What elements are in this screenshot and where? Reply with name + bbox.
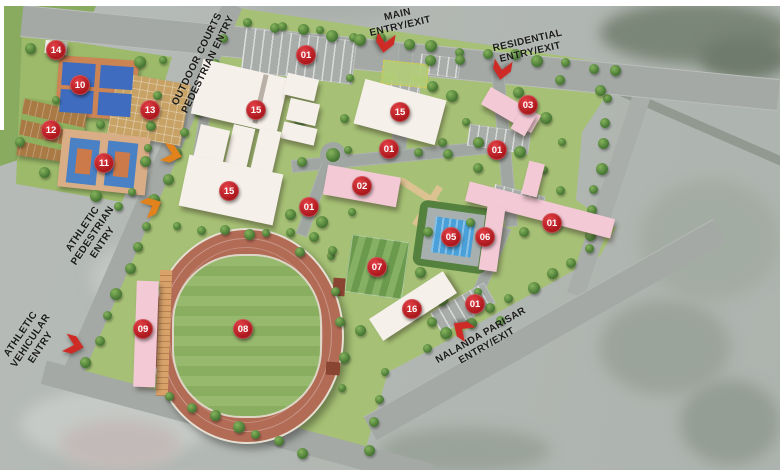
- tree-canopy: [180, 128, 189, 137]
- tree-canopy: [338, 384, 346, 392]
- tree-canopy: [381, 368, 389, 376]
- tree-canopy: [39, 167, 50, 178]
- tree-canopy: [15, 137, 25, 147]
- basketball-court: [99, 65, 134, 90]
- badge-01: 01: [465, 294, 485, 314]
- badge-05: 05: [441, 227, 461, 247]
- badge-13: 13: [140, 100, 160, 120]
- tree-canopy: [96, 120, 105, 129]
- tree-canopy: [297, 157, 307, 167]
- tree-canopy: [285, 209, 296, 220]
- badge-02: 02: [352, 176, 372, 196]
- badge-08: 08: [233, 319, 253, 339]
- tree-canopy: [173, 222, 181, 230]
- tree-canopy: [427, 81, 438, 92]
- tree-canopy: [346, 74, 354, 82]
- tree-canopy: [309, 232, 319, 242]
- tree-canopy: [25, 43, 36, 54]
- tree-canopy: [331, 287, 340, 296]
- tree-canopy: [340, 114, 349, 123]
- tree-canopy: [144, 144, 152, 152]
- badge-14: 14: [46, 40, 66, 60]
- tree-canopy: [110, 288, 122, 300]
- tree-canopy: [165, 392, 174, 401]
- tree-canopy: [295, 247, 305, 257]
- tree-canopy: [585, 244, 594, 253]
- badge-16: 16: [402, 299, 422, 319]
- tree-canopy: [297, 448, 308, 459]
- frame-top: [0, 0, 780, 6]
- tree-canopy: [600, 118, 610, 128]
- campus-master-plan-map: MAINENTRY/EXITRESIDENTIALENTRY/EXITOUTDO…: [0, 0, 780, 470]
- tree-canopy: [595, 85, 606, 96]
- tree-canopy: [344, 146, 352, 154]
- tree-canopy: [519, 227, 529, 237]
- tree-canopy: [335, 317, 345, 327]
- aerial-blob: [680, 380, 780, 465]
- tree-canopy: [364, 445, 375, 456]
- badge-15: 15: [246, 100, 266, 120]
- badge-07: 07: [367, 257, 387, 277]
- tree-canopy: [286, 228, 295, 237]
- tree-canopy: [125, 263, 136, 274]
- roundabout-island: [326, 148, 340, 162]
- tree-canopy: [95, 336, 105, 346]
- tree-canopy: [446, 90, 458, 102]
- tree-canopy: [610, 65, 621, 76]
- tree-canopy: [197, 226, 206, 235]
- tree-canopy: [415, 267, 426, 278]
- tree-canopy: [555, 75, 565, 85]
- tree-canopy: [540, 112, 552, 124]
- tree-canopy: [355, 325, 366, 336]
- tree-canopy: [589, 185, 598, 194]
- tennis-court-surface: [75, 148, 93, 174]
- track-side-structure: [326, 362, 341, 376]
- badge-12: 12: [41, 120, 61, 140]
- tree-canopy: [316, 26, 324, 34]
- tree-canopy: [146, 121, 156, 131]
- badge-15: 15: [390, 102, 410, 122]
- badge-01: 01: [296, 45, 316, 65]
- aerial-blob: [60, 420, 180, 470]
- frame-left: [0, 0, 4, 130]
- tree-canopy: [423, 344, 432, 353]
- tree-canopy: [52, 96, 60, 104]
- tree-canopy: [128, 188, 136, 196]
- tree-canopy: [233, 421, 245, 433]
- tree-canopy: [485, 303, 495, 313]
- tree-canopy: [558, 138, 566, 146]
- tennis-court-surface: [113, 151, 131, 177]
- tree-canopy: [354, 34, 366, 46]
- tree-canopy: [556, 186, 565, 195]
- tree-canopy: [423, 227, 433, 237]
- badge-10: 10: [70, 75, 90, 95]
- tree-canopy: [316, 216, 328, 228]
- basketball-court: [97, 92, 132, 117]
- badge-06: 06: [475, 227, 495, 247]
- tree-canopy: [561, 58, 570, 67]
- tree-canopy: [425, 40, 437, 52]
- tree-canopy: [328, 246, 337, 255]
- tree-canopy: [220, 225, 230, 235]
- tree-canopy: [473, 163, 483, 173]
- tree-canopy: [375, 395, 384, 404]
- tree-canopy: [528, 282, 540, 294]
- tree-canopy: [425, 55, 436, 66]
- badge-15: 15: [219, 181, 239, 201]
- tree-canopy: [348, 208, 356, 216]
- badge-01: 01: [542, 213, 562, 233]
- tree-canopy: [455, 55, 465, 65]
- tree-canopy: [443, 149, 453, 159]
- tree-canopy: [251, 430, 260, 439]
- tree-canopy: [326, 30, 338, 42]
- tree-canopy: [274, 436, 284, 446]
- tree-canopy: [339, 352, 350, 363]
- tree-canopy: [210, 410, 221, 421]
- badge-03: 03: [518, 95, 538, 115]
- tree-canopy: [163, 174, 174, 185]
- tree-canopy: [566, 258, 576, 268]
- aerial-blob: [600, 300, 730, 395]
- tree-canopy: [103, 311, 112, 320]
- tree-canopy: [596, 163, 608, 175]
- tree-canopy: [438, 138, 447, 147]
- tree-canopy: [414, 148, 423, 157]
- badge-01: 01: [379, 139, 399, 159]
- tree-canopy: [547, 268, 558, 279]
- tree-canopy: [153, 91, 162, 100]
- tree-canopy: [466, 218, 475, 227]
- badge-01: 01: [299, 197, 319, 217]
- badge-09: 09: [133, 319, 153, 339]
- tree-canopy: [243, 18, 252, 27]
- badge-11: 11: [94, 153, 114, 173]
- tree-canopy: [140, 156, 151, 167]
- tree-canopy: [134, 56, 146, 68]
- tree-canopy: [473, 137, 484, 148]
- tree-canopy: [598, 138, 609, 149]
- tree-canopy: [589, 64, 599, 74]
- badge-01: 01: [487, 140, 507, 160]
- tree-canopy: [504, 294, 513, 303]
- tree-canopy: [244, 229, 255, 240]
- tree-canopy: [462, 118, 470, 126]
- tree-canopy: [278, 22, 287, 31]
- tree-canopy: [159, 56, 167, 64]
- tree-canopy: [514, 146, 526, 158]
- tree-canopy: [427, 317, 437, 327]
